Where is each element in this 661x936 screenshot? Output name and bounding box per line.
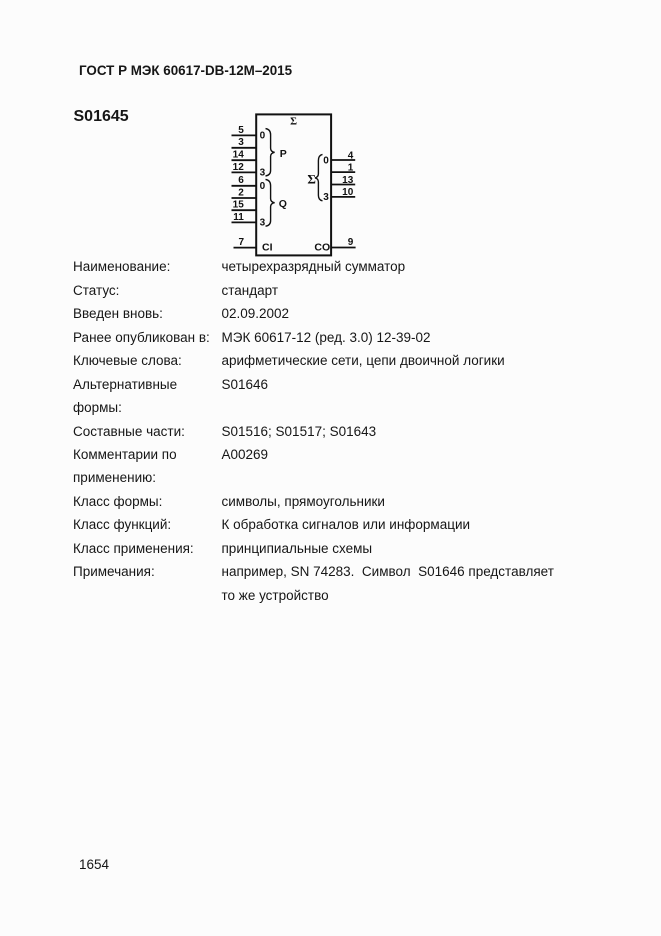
- svg-text:0: 0: [260, 181, 266, 192]
- svg-text:0: 0: [323, 156, 329, 167]
- svg-text:14: 14: [233, 150, 245, 161]
- svg-text:4: 4: [348, 150, 354, 161]
- svg-text:Σ: Σ: [290, 117, 297, 128]
- svg-text:12: 12: [233, 162, 245, 173]
- svg-text:7: 7: [238, 237, 244, 248]
- svg-text:11: 11: [233, 212, 244, 223]
- svg-text:3: 3: [260, 167, 266, 178]
- svg-text:Σ: Σ: [307, 171, 316, 186]
- svg-text:0: 0: [260, 131, 266, 142]
- svg-text:6: 6: [238, 175, 244, 186]
- svg-text:Q: Q: [279, 198, 287, 210]
- svg-text:CI: CI: [262, 241, 273, 253]
- svg-text:10: 10: [342, 187, 354, 198]
- svg-text:CO: CO: [314, 241, 330, 253]
- svg-text:9: 9: [348, 237, 354, 248]
- svg-text:P: P: [280, 148, 287, 160]
- svg-text:15: 15: [233, 200, 245, 211]
- svg-text:13: 13: [342, 175, 354, 186]
- svg-text:3: 3: [260, 218, 266, 229]
- svg-text:3: 3: [238, 137, 244, 148]
- svg-text:3: 3: [323, 192, 329, 203]
- svg-text:5: 5: [238, 125, 244, 136]
- svg-text:1: 1: [348, 162, 354, 173]
- svg-text:2: 2: [238, 187, 244, 198]
